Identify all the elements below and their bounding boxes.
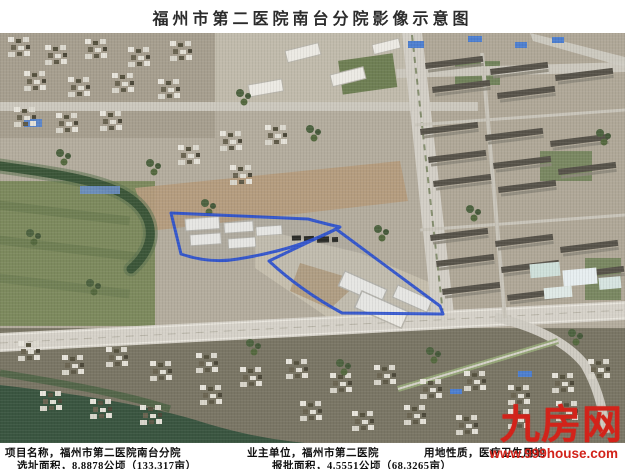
approved-area-value: 4.5551公顷（68.3265亩） — [327, 461, 452, 469]
approved-area-label: 报批面积 — [272, 461, 316, 469]
land-use-value: 医疗卫生用地 — [479, 448, 545, 459]
site-area-label: 选址面积 — [17, 461, 61, 469]
page-title-text: 福州市第二医院南台分院影像示意图 — [152, 5, 472, 29]
satellite-map — [0, 33, 625, 443]
page-title: 福州市第二医院南台分院影像示意图 — [0, 0, 625, 33]
page: 福州市第二医院南台分院影像示意图 — [0, 0, 625, 469]
satellite-map-image — [0, 33, 625, 443]
approved-area-field: 报批面积，4.5551公顷（68.3265亩） — [272, 458, 452, 469]
project-info-strip: 项目名称，福州市第二医院南台分院 业主单位，福州市第二医院 用地性质，医疗卫生用… — [0, 443, 625, 469]
site-area-value: 8.8878公顷（133.317亩） — [72, 461, 197, 469]
site-area-field: 选址面积，8.8878公顷（133.317亩） — [17, 458, 197, 469]
